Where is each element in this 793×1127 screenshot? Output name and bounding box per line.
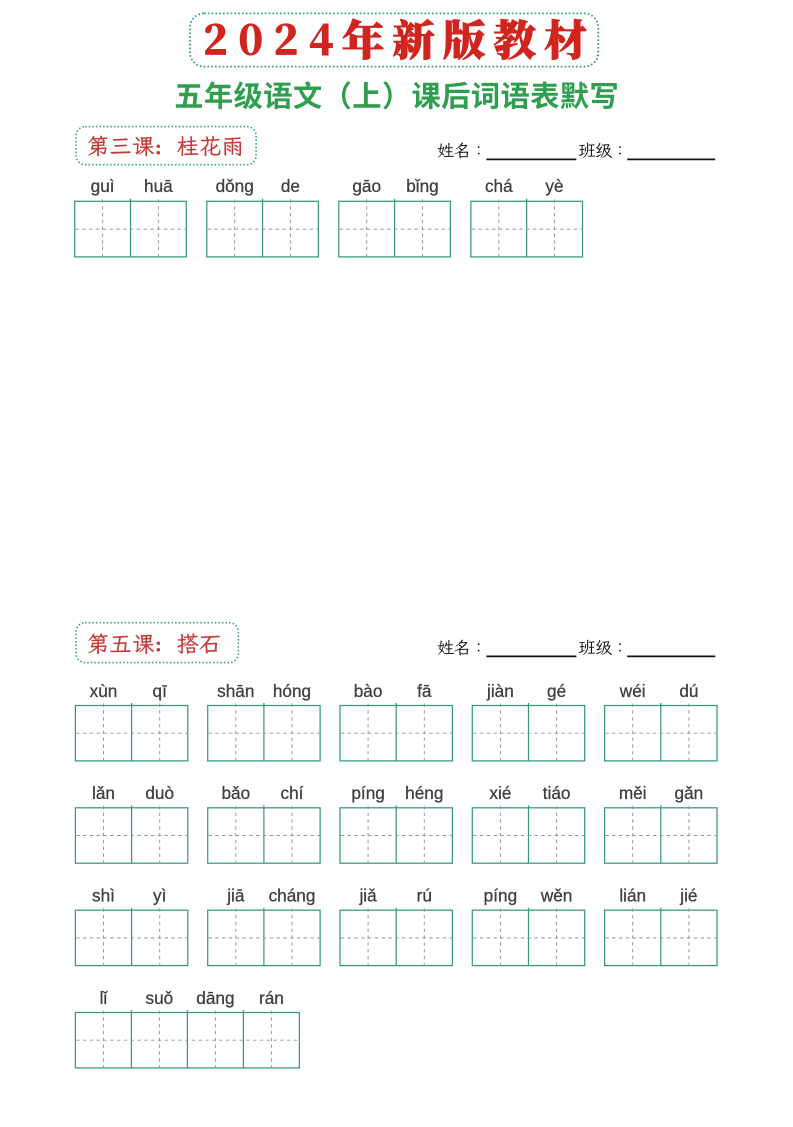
svg-text:guì: guì xyxy=(91,176,115,196)
svg-text:lǐ: lǐ xyxy=(100,988,109,1008)
svg-text:yè: yè xyxy=(545,176,563,196)
svg-text:cháng: cháng xyxy=(269,886,316,906)
svg-text:shān: shān xyxy=(217,681,254,701)
svg-text:píng: píng xyxy=(484,886,517,906)
svg-text:shì: shì xyxy=(92,886,115,906)
svg-text:gǎn: gǎn xyxy=(675,783,704,803)
svg-text:fā: fā xyxy=(417,681,432,701)
svg-text:chí: chí xyxy=(281,783,304,803)
svg-text:jiǎ: jiǎ xyxy=(358,886,377,906)
svg-text:xié: xié xyxy=(489,783,511,803)
svg-text:dǒng: dǒng xyxy=(216,176,254,196)
svg-text:dú: dú xyxy=(679,681,698,701)
svg-text:xùn: xùn xyxy=(90,681,118,701)
svg-text:wéi: wéi xyxy=(619,681,646,701)
svg-text:wěn: wěn xyxy=(540,886,573,906)
svg-text:bǐng: bǐng xyxy=(406,176,439,196)
svg-text:duò: duò xyxy=(145,783,174,803)
svg-text:dāng: dāng xyxy=(196,988,234,1008)
svg-text:yì: yì xyxy=(153,886,166,906)
svg-text:qī: qī xyxy=(153,681,168,701)
svg-text:rú: rú xyxy=(417,886,432,906)
svg-text:píng: píng xyxy=(351,783,384,803)
svg-text:jiā: jiā xyxy=(226,886,245,906)
svg-text:jiàn: jiàn xyxy=(486,681,514,701)
svg-text:huā: huā xyxy=(144,176,173,196)
svg-text:bǎo: bǎo xyxy=(221,783,250,803)
svg-text:rán: rán xyxy=(259,988,284,1008)
svg-text:jié: jié xyxy=(679,886,697,906)
svg-text:chá: chá xyxy=(485,176,513,196)
svg-text:tiáo: tiáo xyxy=(543,783,571,803)
svg-text:gé: gé xyxy=(547,681,566,701)
svg-text:lǎn: lǎn xyxy=(92,783,115,803)
svg-text:lián: lián xyxy=(619,886,646,906)
svg-text:gāo: gāo xyxy=(352,176,381,196)
svg-text:bào: bào xyxy=(354,681,383,701)
svg-text:héng: héng xyxy=(405,783,443,803)
svg-text:suǒ: suǒ xyxy=(146,988,174,1008)
svg-text:hóng: hóng xyxy=(273,681,311,701)
svg-text:de: de xyxy=(281,176,300,196)
svg-text:měi: měi xyxy=(619,783,647,803)
